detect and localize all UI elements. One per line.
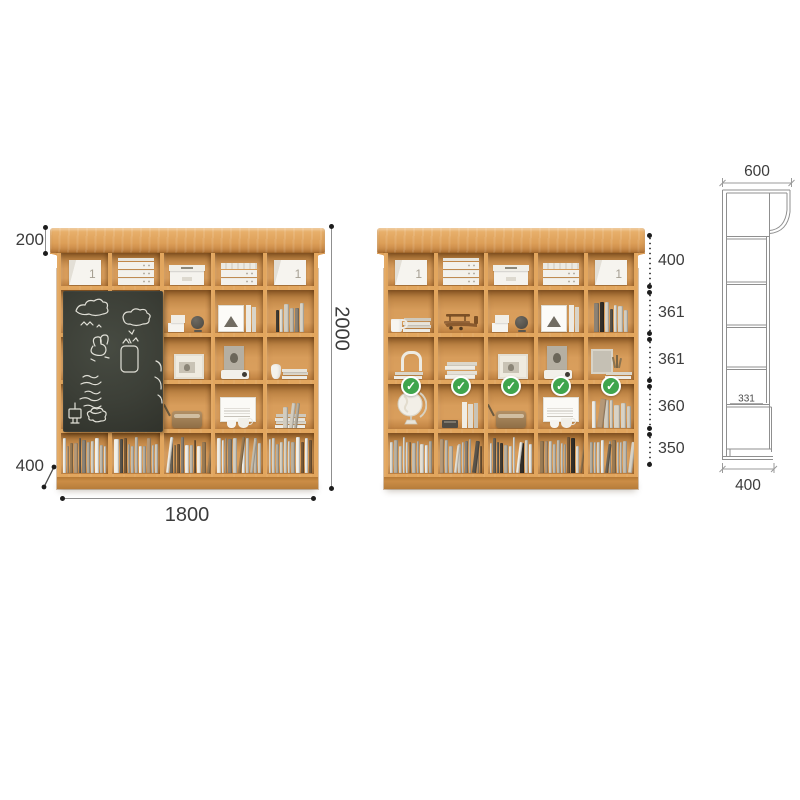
item-part: [100, 445, 103, 473]
item-part: [497, 442, 499, 473]
item-part: [284, 438, 286, 473]
chalk-doodle: [123, 338, 138, 343]
dim-dot: [647, 426, 652, 431]
item-part: [114, 439, 119, 473]
item-books-row-5: [267, 433, 314, 474]
item-part: [506, 277, 516, 281]
item-part: [445, 323, 477, 328]
side-dim-400: [720, 463, 778, 473]
item-part: [390, 436, 432, 473]
dim-dot: [329, 224, 334, 229]
side-bottom-depth-label: 400: [735, 477, 761, 494]
item-box-drawers2: [538, 253, 584, 286]
item-part: [594, 442, 596, 473]
item-part: [139, 446, 142, 473]
item-part: [590, 398, 632, 428]
chalk-doodle: [129, 330, 134, 334]
shelf-cell: [438, 337, 484, 380]
item-part: [301, 442, 304, 473]
item-part: [282, 376, 307, 379]
item-part: [500, 443, 503, 473]
diagram-canvas: 11 11✓✓✓✓✓ 200 400 2000 1800 40036136136…: [0, 0, 800, 800]
item-part: [547, 406, 573, 418]
item-part: [191, 316, 204, 329]
item-part: [610, 400, 613, 428]
item-part: [224, 316, 238, 327]
dim-dot: [647, 290, 652, 295]
dim-segment-dotted-line: [649, 340, 651, 379]
item-part: [124, 438, 126, 473]
item-part: [224, 406, 250, 418]
dim-dot: [647, 432, 652, 437]
item-part: [276, 310, 279, 332]
item-box-lid: [488, 253, 534, 286]
item-part: [621, 403, 626, 428]
item-part: [612, 440, 615, 473]
item-part: [624, 310, 628, 332]
checkmark-badge: ✓: [451, 376, 471, 396]
item-part: [575, 307, 579, 332]
item-part: [490, 443, 492, 473]
item-part: [118, 258, 154, 261]
chalk-doodle: [71, 403, 79, 423]
item-part: [217, 438, 221, 473]
item-photo-frame: [488, 337, 534, 380]
item-part: [207, 439, 211, 473]
chalkboard-doodles: [63, 291, 163, 432]
item-part: [412, 443, 415, 473]
item-part: [177, 444, 180, 473]
crown-fillet-left: [377, 253, 384, 268]
item-part: [217, 436, 260, 473]
shelf-cell: [215, 433, 262, 474]
item-part: [143, 446, 146, 473]
item-frame-triangle-books: [538, 290, 584, 333]
dim-segment-dotted-line: [649, 236, 651, 285]
item-part: [474, 316, 478, 324]
dim-dot: [311, 496, 316, 501]
item-cards-globe: [164, 290, 211, 333]
item-part: [543, 263, 579, 269]
item-part: [614, 405, 620, 428]
item-part: [445, 440, 449, 473]
item-part: [118, 270, 154, 277]
item-box-single: 1: [388, 253, 434, 286]
shelf-cell: [488, 337, 534, 380]
item-part: [394, 440, 398, 473]
item-part: [618, 306, 623, 332]
item-part: [465, 441, 467, 473]
item-part: [309, 440, 312, 473]
dim-dot: [647, 462, 652, 467]
shelf-cell: [215, 384, 262, 429]
item-part: [182, 277, 192, 281]
shelf-cell: [388, 433, 434, 474]
item-part: [443, 258, 479, 261]
item-part: [567, 437, 570, 473]
dim-segment-label: 350: [658, 440, 685, 458]
item-part: [571, 438, 575, 473]
dim-segment-label: 360: [658, 398, 685, 416]
item-part: [525, 440, 529, 473]
item-part: [114, 436, 157, 473]
item-part: [614, 305, 617, 332]
chalk-doodle: [121, 346, 138, 372]
item-part: 1: [69, 267, 96, 281]
item-cards-globe: [488, 290, 534, 333]
item-part: [194, 440, 197, 473]
dim-total-height-label: 2000: [330, 300, 353, 358]
item-part: [155, 444, 157, 473]
item-part: [194, 330, 202, 333]
item-part: [185, 445, 189, 473]
item-part: [592, 401, 596, 428]
dim-crown-height-label: 200: [12, 230, 44, 250]
item-part: [248, 418, 253, 425]
decorative-part: [770, 210, 788, 231]
item-part: [135, 437, 137, 473]
item-part: [87, 442, 90, 473]
item-part: [443, 262, 479, 269]
item-books-row-10: [588, 433, 634, 474]
item-part: [405, 420, 417, 424]
dim-segment-dotted-line: [649, 435, 651, 463]
item-photo-frame: [164, 337, 211, 380]
crown-fillet-left: [50, 253, 57, 268]
checkmark-badge: ✓: [501, 376, 521, 396]
item-part: [166, 436, 209, 473]
dim-dot: [647, 233, 652, 238]
dim-segment-dotted-line: [649, 387, 651, 427]
shelf-cell: [164, 290, 211, 333]
item-part: [246, 305, 251, 332]
item-part: [104, 446, 106, 473]
shelf-cell: [538, 433, 584, 474]
item-box-single: 1: [61, 253, 108, 286]
item-part: [404, 325, 431, 328]
shelf-cell: [61, 433, 108, 474]
item-part: [202, 442, 205, 473]
dim-dot: [329, 486, 334, 491]
item-part: [576, 446, 579, 473]
item-part: [440, 439, 444, 473]
dim-dot: [43, 225, 48, 230]
item-part: [390, 442, 393, 473]
item-part: [540, 436, 582, 473]
crown-fillet-right: [638, 253, 645, 268]
item-part: 1: [274, 267, 301, 281]
shelf-cell: [438, 253, 484, 286]
item-part: [296, 437, 300, 473]
item-part: [443, 270, 479, 277]
item-part: [230, 353, 238, 363]
item-part: [128, 444, 130, 473]
item-part: [495, 315, 509, 323]
shelf-cell: [388, 290, 434, 333]
item-part: [498, 414, 524, 418]
item-part: [283, 407, 288, 428]
item-part: [449, 326, 453, 330]
item-part: [118, 278, 154, 285]
shelf-cell: [438, 290, 484, 333]
dim-dot: [43, 251, 48, 256]
dim-line-vertical: [45, 227, 46, 253]
shelf-cell: [388, 337, 434, 380]
chalk-doodle: [155, 361, 162, 403]
item-part: [590, 442, 593, 473]
shelf-cell: 1: [388, 253, 434, 286]
item-box-single: 1: [588, 253, 634, 286]
item-part: [543, 278, 579, 285]
item-part: [295, 308, 299, 332]
dim-total-width-label: 1800: [137, 504, 237, 527]
item-part: [147, 438, 151, 473]
item-part: [505, 267, 517, 270]
item-part: [549, 441, 552, 473]
decorative-part: [42, 485, 47, 490]
item-part: [288, 441, 290, 473]
item-portrait-projector: [538, 337, 584, 380]
dim-dot: [647, 384, 652, 389]
item-part: [420, 444, 424, 473]
crown-fillet-right: [318, 253, 325, 268]
dim-diagonal-leader: [38, 461, 60, 493]
item-part: [444, 421, 456, 423]
item-part: [246, 438, 248, 473]
side-profile-view: 600 331 400: [700, 150, 800, 498]
item-part: [280, 442, 283, 473]
item-part: [118, 262, 154, 269]
item-part: [70, 443, 73, 473]
item-part: [258, 443, 260, 473]
item-part: [269, 302, 312, 332]
item-part: [492, 323, 508, 332]
item-part: [252, 307, 256, 332]
shelf-cell: [164, 253, 211, 286]
chalk-doodle: [91, 335, 108, 355]
item-part: [469, 439, 471, 473]
item-books-row-6: [388, 433, 434, 474]
item-part: [449, 446, 453, 473]
item-part: [395, 372, 423, 375]
decorative-part: [44, 467, 54, 487]
item-part: [509, 446, 513, 473]
item-part: [564, 444, 566, 473]
item-books-row-2: [112, 433, 159, 474]
item-part: [550, 420, 559, 428]
shelf-cell: 1: [267, 253, 314, 286]
item-part: [168, 323, 184, 332]
item-part: [627, 406, 631, 428]
item-part: [404, 318, 431, 321]
item-part: [276, 444, 279, 473]
item-frame-plant-books: [588, 337, 634, 380]
item-part: [409, 442, 411, 473]
item-part: [580, 439, 584, 473]
shelf-cell: [164, 337, 211, 380]
shelf-cell: [488, 290, 534, 333]
item-part: [474, 403, 478, 428]
item-box-drawers2: [215, 253, 262, 286]
item-part: [399, 446, 402, 473]
shelf-cell: [588, 433, 634, 474]
checkmark-badge: ✓: [601, 376, 621, 396]
decorative-part: [52, 465, 57, 470]
shelf-cell: [164, 384, 211, 429]
item-arch-books: [388, 337, 434, 380]
item-part: [508, 364, 514, 371]
checkmark-badge: ✓: [551, 376, 571, 396]
item-part: [462, 402, 467, 428]
item-part: [269, 402, 312, 428]
shelf-cell: [538, 290, 584, 333]
shelf-cell: [267, 337, 314, 380]
item-part: [447, 362, 477, 366]
item-part: [82, 440, 86, 473]
item-part: [620, 442, 622, 473]
item-part: 1: [395, 267, 422, 281]
shelf-cell: 1: [61, 253, 108, 286]
item-books-mixed: [588, 290, 634, 333]
shelf-cell: [588, 290, 634, 333]
item-part: [417, 441, 419, 473]
chalk-doodle: [91, 357, 109, 361]
item-part: [401, 351, 422, 371]
item-part: [228, 439, 232, 473]
item-part: [225, 438, 227, 473]
dim-dot: [647, 337, 652, 342]
chalk-doodle: [69, 299, 162, 423]
item-part: [597, 442, 600, 473]
item-part: [403, 437, 405, 473]
item-part: [571, 418, 576, 425]
item-part: [95, 438, 99, 473]
item-part: [553, 353, 561, 363]
item-box-drawers: [438, 253, 484, 286]
item-part: [543, 270, 579, 277]
item-part: [282, 369, 307, 372]
item-box-lid: [164, 253, 211, 286]
item-part: [271, 364, 281, 379]
dim-dot: [647, 284, 652, 289]
shelf-cell: [538, 253, 584, 286]
item-part: [610, 309, 613, 332]
chalk-doodle: [69, 409, 81, 418]
item-books-row-3: [164, 433, 211, 474]
item-part: [561, 443, 563, 473]
shelf-cell: [215, 253, 262, 286]
item-part: [272, 438, 275, 473]
item-book-stack: [438, 337, 484, 380]
item-radio: [164, 384, 211, 429]
item-part: [305, 438, 308, 473]
item-part: [557, 440, 559, 473]
chalk-doodle: [76, 299, 108, 315]
item-box-single: 1: [267, 253, 314, 286]
item-part: [74, 443, 78, 473]
dim-dot: [647, 331, 652, 336]
item-part: [441, 311, 481, 331]
item-part: [569, 305, 574, 332]
item-part: [197, 446, 201, 473]
item-part: [488, 404, 494, 416]
shelf-base: [384, 477, 638, 489]
shelf-cell: [112, 253, 159, 286]
shelf-crown: [50, 228, 325, 253]
item-part: [480, 446, 482, 473]
shelf-base: [57, 477, 318, 489]
item-part: [545, 441, 548, 473]
shelf-cell: [215, 337, 262, 380]
item-part: [440, 436, 482, 473]
shelf-cell: [488, 253, 534, 286]
item-part: [591, 349, 613, 374]
shelf-cell: [112, 433, 159, 474]
item-part: [406, 442, 409, 473]
item-part: [131, 446, 134, 473]
item-part: [429, 441, 432, 473]
item-part: [540, 441, 544, 473]
item-box-drawers: [112, 253, 159, 286]
dim-segment-label: 400: [658, 252, 685, 270]
item-books-row-7: [438, 433, 484, 474]
chalk-doodle: [80, 376, 101, 408]
item-part: [79, 438, 81, 473]
item-part: [628, 442, 634, 473]
item-part: [443, 278, 479, 285]
item-part: [190, 445, 193, 473]
item-part: [181, 437, 184, 473]
item-part: [493, 438, 496, 473]
item-part: [600, 302, 604, 332]
item-part: [221, 278, 257, 285]
checkmark-badge: ✓: [401, 376, 421, 396]
item-part: [515, 316, 528, 329]
item-books-dark: [267, 290, 314, 333]
item-books-flat: [267, 384, 314, 429]
chalk-doodle: [87, 408, 106, 421]
dim-dot: [647, 378, 652, 383]
item-part: [547, 316, 561, 327]
item-part: [291, 442, 295, 473]
item-part: [605, 302, 609, 332]
item-books-row-4: [215, 433, 262, 474]
shelf-cell: [438, 433, 484, 474]
item-part: [227, 420, 236, 428]
item-vase-books: [267, 337, 314, 380]
item-part: [606, 372, 632, 375]
item-part: 1: [595, 267, 622, 281]
item-part: [447, 371, 477, 375]
dim-segment-label: 361: [658, 351, 685, 369]
item-part: [174, 445, 177, 473]
item-part: [623, 441, 627, 473]
item-frame-triangle-books: [215, 290, 262, 333]
item-part: [181, 267, 193, 270]
item-part: [280, 309, 283, 332]
shelf-cell: [588, 337, 634, 380]
shelf-cell: [488, 433, 534, 474]
item-part: [120, 439, 123, 473]
item-portrait-projector: [215, 337, 262, 380]
shelf-cell: [538, 337, 584, 380]
item-part: [283, 372, 308, 375]
item-part: [513, 437, 515, 473]
side-shelf-depth-label: 331: [738, 394, 755, 405]
item-part: [468, 404, 473, 428]
item-part: [518, 330, 526, 333]
item-part: [618, 358, 622, 368]
